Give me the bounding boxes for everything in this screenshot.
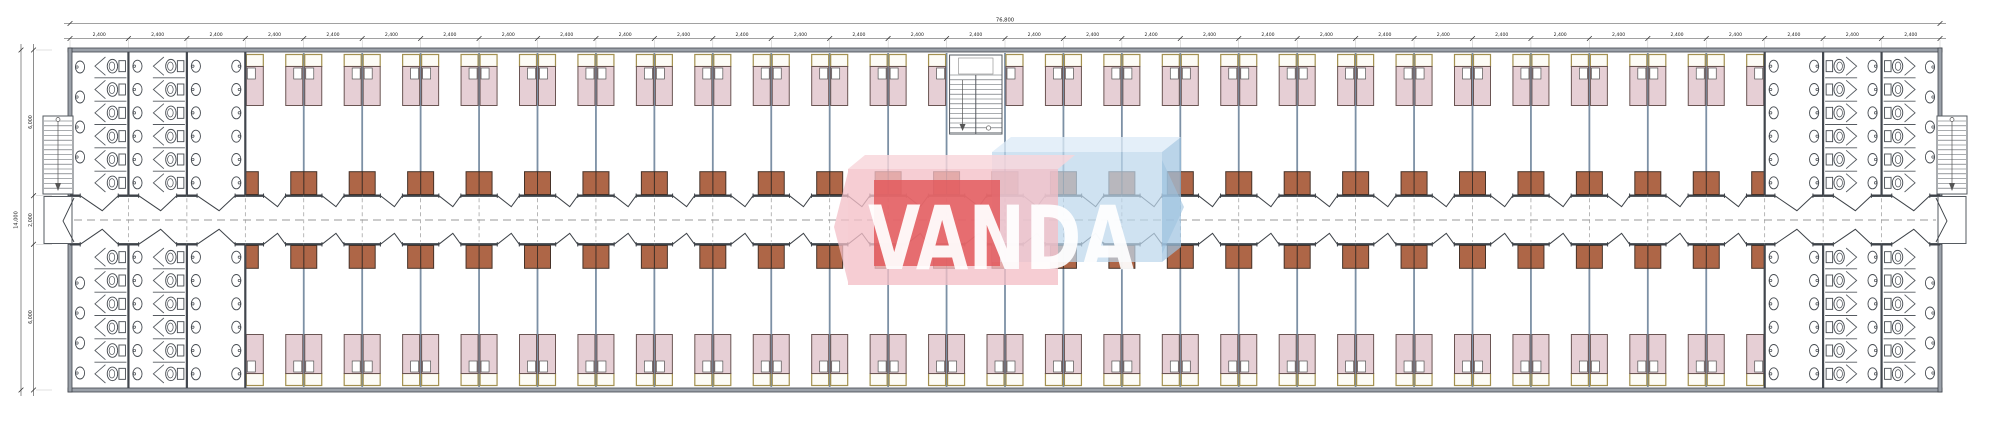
bed-headboard <box>929 55 946 67</box>
stall-door <box>153 57 164 75</box>
sink <box>1810 60 1819 72</box>
sink <box>133 251 142 263</box>
wardrobe <box>1284 172 1297 195</box>
bed-headboard <box>422 55 439 67</box>
sink <box>1769 298 1778 310</box>
wardrobe <box>1706 246 1719 269</box>
bed-headboard <box>636 55 653 67</box>
dim-bay-label: 2,400 <box>502 32 515 38</box>
stall-door <box>1905 318 1916 336</box>
door-swing-top <box>497 196 519 207</box>
door-swing-bottom <box>439 233 461 244</box>
dim-bay-label: 2,400 <box>326 32 339 38</box>
wardrobe <box>1297 246 1310 269</box>
stall-door <box>153 150 164 168</box>
bed-pillow <box>364 68 372 79</box>
dim-bay-label: 2,400 <box>151 32 164 38</box>
bed-headboard <box>1513 55 1530 67</box>
door-swing-top <box>1491 196 1513 207</box>
bed-headboard <box>286 374 303 386</box>
dim-left-segment-2: 2,000 <box>28 213 34 227</box>
bed-pillow <box>306 361 314 372</box>
bed-pillow <box>1170 68 1178 79</box>
bed-pillow <box>878 68 886 79</box>
wardrobe <box>1401 246 1414 269</box>
sink <box>232 60 241 72</box>
bathroom-block <box>1765 246 1935 389</box>
sink <box>232 251 241 263</box>
bed-pillow <box>423 68 431 79</box>
stall-door <box>1905 271 1916 289</box>
bed-headboard <box>1338 55 1355 67</box>
stall-door <box>95 341 106 359</box>
bed-pillow <box>1007 361 1015 372</box>
wardrobe <box>830 172 843 195</box>
wardrobe <box>1518 172 1531 195</box>
bed-headboard <box>1045 374 1062 386</box>
bed-pillow <box>1053 361 1061 372</box>
bed-pillow <box>1533 361 1541 372</box>
dim-bay-label: 2,400 <box>385 32 398 38</box>
door-swing-top <box>789 196 811 207</box>
toilet-tank <box>1826 131 1833 142</box>
dim-bay-label: 2,400 <box>1904 32 1917 38</box>
bed-pillow <box>1650 68 1658 79</box>
bed-pillow <box>644 68 652 79</box>
sink <box>1868 298 1877 310</box>
toilet-tank <box>1826 345 1833 356</box>
outer-wall-top <box>68 48 1942 52</box>
sink <box>1769 275 1778 287</box>
bed-headboard <box>714 55 731 67</box>
door-swing-bottom <box>1257 233 1279 244</box>
sink <box>191 368 200 380</box>
door-swing-top <box>322 196 344 207</box>
dim-bay-label: 2,400 <box>1612 32 1625 38</box>
toilet-tank <box>177 298 184 309</box>
bed-pillow <box>598 68 606 79</box>
stall-door <box>1846 341 1857 359</box>
door-swing-bottom <box>1374 233 1396 244</box>
outer-wall-bottom <box>68 388 1942 392</box>
bed-headboard <box>1513 374 1530 386</box>
sink <box>75 367 84 379</box>
toilet-tank <box>177 345 184 356</box>
wardrobe <box>1576 172 1589 195</box>
bed-headboard <box>1104 55 1121 67</box>
door-swing-top <box>1549 196 1571 207</box>
stall-door <box>95 248 106 266</box>
bed-pillow <box>1463 68 1471 79</box>
bed-headboard <box>655 55 672 67</box>
toilet-tank <box>1885 322 1892 333</box>
bed-headboard <box>480 55 497 67</box>
sink <box>133 84 142 96</box>
door-swing-bottom <box>556 233 578 244</box>
bed-pillow <box>352 68 360 79</box>
wardrobe <box>700 172 713 195</box>
wardrobe <box>817 246 830 269</box>
toilet-tank <box>1826 154 1833 165</box>
dim-bay-label: 2,400 <box>1028 32 1041 38</box>
toilet-tank <box>1826 368 1833 379</box>
sink <box>232 84 241 96</box>
bed-pillow <box>1007 68 1015 79</box>
sink <box>232 107 241 119</box>
sink <box>1868 84 1877 96</box>
stair-right <box>1936 116 1967 244</box>
wardrobe <box>1648 246 1661 269</box>
sink <box>1868 368 1877 380</box>
bed-pillow <box>937 68 945 79</box>
bed-pillow <box>1241 361 1249 372</box>
bed-pillow <box>1346 361 1354 372</box>
wardrobe <box>362 172 375 195</box>
bed-pillow <box>832 68 840 79</box>
bed-pillow <box>540 361 548 372</box>
sink <box>133 298 142 310</box>
sink <box>75 307 84 319</box>
toilet-tank <box>119 298 126 309</box>
door-swing-bottom <box>1432 233 1454 244</box>
sink <box>1868 177 1877 189</box>
stair-start-marker <box>56 118 60 122</box>
stall-door <box>1846 295 1857 313</box>
toilet-tank <box>119 177 126 188</box>
wardrobe <box>771 172 784 195</box>
door-swing-top <box>673 196 695 207</box>
stall-door <box>153 127 164 145</box>
bed-pillow <box>1638 361 1646 372</box>
bed-headboard <box>987 374 1004 386</box>
sink <box>232 368 241 380</box>
toilet-tank <box>1885 275 1892 286</box>
bed-headboard <box>948 374 965 386</box>
bed-headboard <box>1455 374 1472 386</box>
bed-pillow <box>1463 361 1471 372</box>
dim-bay-label: 2,400 <box>210 32 223 38</box>
sink <box>232 298 241 310</box>
wardrobe <box>291 246 304 269</box>
dim-bay-label: 2,400 <box>1554 32 1567 38</box>
sink <box>1810 345 1819 357</box>
sink <box>1868 251 1877 263</box>
toilet-tank <box>1826 107 1833 118</box>
watermark: VANDA <box>834 137 1184 290</box>
bed-headboard <box>1649 374 1666 386</box>
door-swing-top <box>1833 196 1871 211</box>
stall-door <box>95 150 106 168</box>
toilet-tank <box>1885 345 1892 356</box>
dim-bay-label: 2,400 <box>911 32 924 38</box>
door-swing-top <box>1608 196 1630 207</box>
sink <box>75 277 84 289</box>
toilet-tank <box>177 275 184 286</box>
sink <box>133 345 142 357</box>
sink <box>232 177 241 189</box>
wardrobe <box>245 246 258 269</box>
bed-pillow <box>528 68 536 79</box>
wardrobe <box>596 246 609 269</box>
toilet-tank <box>177 84 184 95</box>
bed-headboard <box>1181 55 1198 67</box>
door-swing-top <box>1432 196 1454 207</box>
bed-headboard <box>831 374 848 386</box>
bed-pillow <box>1299 361 1307 372</box>
toilet-tank <box>1885 368 1892 379</box>
wardrobe <box>713 246 726 269</box>
sink <box>75 121 84 133</box>
bed-headboard <box>753 55 770 67</box>
sink <box>191 298 200 310</box>
toilet-tank <box>119 84 126 95</box>
door-swing-top <box>1374 196 1396 207</box>
stall-door <box>95 80 106 98</box>
wardrobe <box>1356 172 1369 195</box>
stair-landing <box>1938 197 1966 244</box>
toilet-tank <box>1826 275 1833 286</box>
bed-pillow <box>294 68 302 79</box>
bed-headboard <box>1298 374 1315 386</box>
bed-headboard <box>1474 55 1491 67</box>
dim-bay-label: 2,400 <box>1320 32 1333 38</box>
bed-headboard <box>889 374 906 386</box>
bed-pillow <box>1475 68 1483 79</box>
bed-headboard <box>1688 374 1705 386</box>
toilet-tank <box>1885 107 1892 118</box>
sink <box>191 130 200 142</box>
dim-bay-label: 2,400 <box>443 32 456 38</box>
door-swing-bottom <box>731 233 753 244</box>
dim-bay-label: 2,400 <box>1437 32 1450 38</box>
sink <box>1868 130 1877 142</box>
toilet-tank <box>177 368 184 379</box>
bathroom-block <box>1765 52 1935 195</box>
bed-headboard <box>1045 55 1062 67</box>
wardrobe <box>421 172 434 195</box>
bed-pillow <box>703 68 711 79</box>
wardrobe <box>304 172 317 195</box>
bed-headboard <box>1221 55 1238 67</box>
sink <box>1868 345 1877 357</box>
bed-pillow <box>890 361 898 372</box>
wardrobe <box>1226 246 1239 269</box>
door-swing-top <box>1666 196 1688 207</box>
toilet-tank <box>119 368 126 379</box>
bed-pillow <box>937 361 945 372</box>
bed-pillow <box>1533 68 1541 79</box>
sink <box>232 130 241 142</box>
floor-plan-canvas: 2,4002,4002,4002,4002,4002,4002,4002,400… <box>0 0 2000 427</box>
door-swing-top <box>80 196 118 211</box>
wardrobe <box>349 246 362 269</box>
door-swing-top <box>556 196 578 207</box>
bed-pillow <box>1182 361 1190 372</box>
bed-pillow <box>1404 361 1412 372</box>
door-swing-bottom <box>1549 233 1571 244</box>
bed-headboard <box>1590 55 1607 67</box>
door-swing-bottom <box>1724 233 1746 244</box>
bed-pillow <box>586 68 594 79</box>
wardrobe <box>1635 246 1648 269</box>
bed-pillow <box>1124 68 1132 79</box>
toilet-tank <box>119 275 126 286</box>
bed-headboard <box>714 374 731 386</box>
bed-pillow <box>644 361 652 372</box>
sink <box>232 154 241 166</box>
bed-headboard <box>539 55 556 67</box>
toilet-tank <box>1885 177 1892 188</box>
bed-headboard <box>1357 55 1374 67</box>
bed-headboard <box>363 374 380 386</box>
wardrobe <box>245 172 258 195</box>
bed-headboard <box>461 374 478 386</box>
bed-headboard <box>1240 55 1257 67</box>
bed-headboard <box>1707 55 1724 67</box>
toilet-tank <box>1885 298 1892 309</box>
stall-door <box>1905 341 1916 359</box>
wardrobe <box>1343 246 1356 269</box>
dim-bay-label: 2,400 <box>1787 32 1800 38</box>
bed-pillow <box>1708 68 1716 79</box>
toilet-tank <box>1885 154 1892 165</box>
wardrobe <box>758 172 771 195</box>
stall-door <box>1905 150 1916 168</box>
bed-headboard <box>305 374 322 386</box>
bed-headboard <box>1006 374 1023 386</box>
bed-headboard <box>403 374 420 386</box>
wardrobe <box>1576 246 1589 269</box>
bed-pillow <box>1124 361 1132 372</box>
wardrobe <box>1752 246 1765 269</box>
bed-pillow <box>1638 68 1646 79</box>
stall-door <box>1846 271 1857 289</box>
toilet-tank <box>1826 84 1833 95</box>
door-swing-bottom <box>322 233 344 244</box>
bed-pillow <box>1579 361 1587 372</box>
toilet-tank <box>177 154 184 165</box>
sink <box>1868 154 1877 166</box>
wardrobe <box>1706 172 1719 195</box>
stall-door <box>1846 57 1857 75</box>
stair-central <box>950 55 1002 134</box>
bed-pillow <box>481 68 489 79</box>
wardrobe <box>408 246 421 269</box>
bed-pillow <box>761 361 769 372</box>
sink <box>1925 337 1934 349</box>
bathroom-block <box>75 246 245 389</box>
sink <box>1810 107 1819 119</box>
wardrobe <box>1589 172 1602 195</box>
wardrobe <box>479 172 492 195</box>
sink <box>1925 367 1934 379</box>
bed-pillow <box>1521 361 1529 372</box>
sink <box>133 275 142 287</box>
bed-headboard <box>695 374 712 386</box>
toilet-tank <box>119 322 126 333</box>
stall-door <box>153 365 164 383</box>
stall-door <box>95 57 106 75</box>
wardrobe <box>1401 172 1414 195</box>
dim-bay-label: 2,400 <box>1261 32 1274 38</box>
sink <box>1810 84 1819 96</box>
bed-pillow <box>820 68 828 79</box>
toilet-tank <box>1885 84 1892 95</box>
bed-pillow <box>1229 68 1237 79</box>
bed-pillow <box>1170 361 1178 372</box>
stall-door <box>153 248 164 266</box>
bed-pillow <box>1346 68 1354 79</box>
stall-door <box>95 318 106 336</box>
bed-headboard <box>597 55 614 67</box>
bed-pillow <box>247 361 255 372</box>
stall-door <box>1905 174 1916 192</box>
bed-pillow <box>528 361 536 372</box>
bed-pillow <box>773 361 781 372</box>
sink <box>232 275 241 287</box>
bed-headboard <box>1415 55 1432 67</box>
bed-pillow <box>890 68 898 79</box>
sink <box>232 345 241 357</box>
dim-bay-label: 2,400 <box>1846 32 1859 38</box>
wardrobe <box>1531 246 1544 269</box>
door-swing-bottom <box>80 229 118 244</box>
sink <box>75 61 84 73</box>
door-swing-bottom <box>614 233 636 244</box>
door-swing-bottom <box>139 229 177 244</box>
toilet-tank <box>1826 252 1833 263</box>
bed-headboard <box>539 374 556 386</box>
bed-headboard <box>1338 374 1355 386</box>
sink <box>133 107 142 119</box>
stall-door <box>153 318 164 336</box>
bed-pillow <box>832 361 840 372</box>
wardrobe <box>1356 246 1369 269</box>
dim-bay-label: 2,400 <box>735 32 748 38</box>
bed-headboard <box>1630 55 1647 67</box>
bed-headboard <box>1707 374 1724 386</box>
bed-pillow <box>820 361 828 372</box>
wardrobe <box>1693 172 1706 195</box>
wardrobe <box>466 246 479 269</box>
door-swing-bottom <box>497 233 519 244</box>
bed-pillow <box>1112 361 1120 372</box>
toilet-tank <box>177 61 184 72</box>
door-swing-bottom <box>1199 233 1221 244</box>
door-swing-bottom <box>673 233 695 244</box>
bed-headboard <box>1064 374 1081 386</box>
stall-door <box>95 127 106 145</box>
bed-pillow <box>1696 68 1704 79</box>
wardrobe <box>1226 172 1239 195</box>
bed-pillow <box>306 68 314 79</box>
toilet-tank <box>119 131 126 142</box>
bed-pillow <box>352 361 360 372</box>
toilet-tank <box>177 107 184 118</box>
bed-headboard <box>1123 374 1140 386</box>
wardrobe <box>1284 246 1297 269</box>
sink <box>1810 321 1819 333</box>
toilet-tank <box>119 107 126 118</box>
dim-bay-label: 2,400 <box>619 32 632 38</box>
sink <box>1925 121 1934 133</box>
bed-pillow <box>878 361 886 372</box>
sink <box>133 60 142 72</box>
bed-pillow <box>1241 68 1249 79</box>
door-swing-bottom <box>1833 229 1871 244</box>
wardrobe <box>1648 172 1661 195</box>
stall-door <box>153 104 164 122</box>
